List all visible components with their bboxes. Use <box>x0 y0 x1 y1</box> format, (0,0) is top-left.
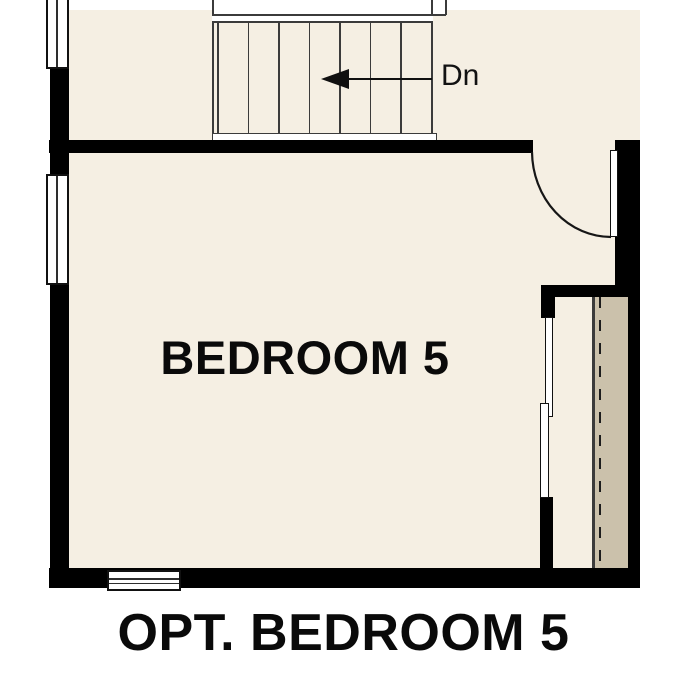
closet-top-wall <box>541 285 640 297</box>
closet-rod-dashed-line <box>599 297 601 568</box>
stair-top-rail <box>212 14 433 23</box>
window-mullion <box>109 583 179 585</box>
closet-shelf-line <box>592 297 595 568</box>
stair-direction-label: Dn <box>441 61 479 91</box>
stair-rail-end-cap <box>433 14 446 16</box>
left-wall-upper <box>50 67 69 175</box>
plan-title: OPT. BEDROOM 5 <box>0 607 687 659</box>
window-mullion <box>109 578 179 580</box>
room-label: BEDROOM 5 <box>135 334 475 381</box>
window-mullion <box>56 176 58 283</box>
down-arrow-icon <box>321 69 349 89</box>
window-left <box>46 174 69 285</box>
stair-tread-line <box>278 23 280 133</box>
floor-plan-canvas: Dn BEDROOM 5 OPT. BEDROOM 5 <box>0 0 687 687</box>
window-top-left <box>46 0 69 69</box>
window-bottom <box>107 570 181 591</box>
closet-jamb-wall-bottom <box>540 497 553 570</box>
down-arrow-line <box>349 78 432 80</box>
stair-tread-line <box>217 23 219 133</box>
stairwell-upper-landing <box>212 0 446 15</box>
closet-jamb-wall-top <box>541 285 555 318</box>
right-wall-lower <box>628 297 640 587</box>
door-swing-arc <box>525 145 620 245</box>
left-wall-lower <box>50 284 69 587</box>
top-wall <box>49 140 533 153</box>
stair-tread-line <box>248 23 250 133</box>
closet-door-panel-2 <box>540 403 549 498</box>
stair-rail-end-line <box>445 0 447 15</box>
window-mullion <box>56 0 58 67</box>
closet-door-panel-1 <box>545 317 554 417</box>
stair-tread-line <box>309 23 311 133</box>
